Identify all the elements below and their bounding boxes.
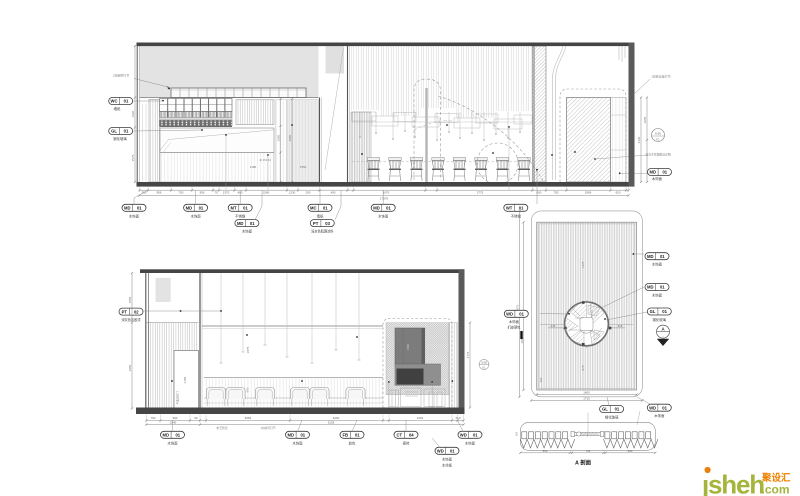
svg-text:1400: 1400 [583, 391, 590, 395]
svg-text:1999: 1999 [585, 191, 592, 195]
svg-text:GL: GL [602, 407, 608, 412]
svg-text:不锈钢: 不锈钢 [511, 213, 522, 218]
svg-text:WD: WD [437, 449, 444, 454]
svg-text:MD: MD [650, 170, 657, 175]
svg-text:木饰面: 木饰面 [129, 213, 140, 218]
svg-text:墙纸: 墙纸 [114, 106, 121, 111]
svg-text:PT: PT [313, 221, 319, 226]
svg-text:MC: MC [310, 206, 317, 211]
svg-text:850: 850 [628, 449, 633, 453]
svg-text:2950: 2950 [277, 134, 281, 141]
svg-text:01: 01 [386, 206, 391, 211]
svg-text:850: 850 [543, 449, 548, 453]
svg-text:不锈钢: 不锈钢 [235, 213, 246, 218]
svg-text:墙纸: 墙纸 [317, 213, 324, 218]
svg-text:MD: MD [288, 433, 295, 438]
svg-text:750: 750 [554, 191, 559, 195]
svg-text:400: 400 [331, 191, 336, 195]
svg-text:MD: MD [237, 221, 244, 226]
svg-text:01: 01 [250, 221, 255, 226]
svg-text:MD: MD [647, 285, 654, 290]
svg-text:WD: WD [649, 405, 656, 410]
svg-text:1550: 1550 [300, 165, 307, 169]
svg-text:01: 01 [355, 433, 360, 438]
svg-text:1670: 1670 [383, 191, 390, 195]
svg-text:01: 01 [124, 129, 129, 134]
svg-text:01: 01 [300, 433, 305, 438]
svg-text:2950: 2950 [128, 364, 132, 371]
svg-text:300: 300 [539, 377, 543, 382]
svg-text:6.92: 6.92 [655, 132, 661, 136]
svg-text:木饰面: 木饰面 [652, 293, 663, 298]
svg-text:木饰面: 木饰面 [242, 229, 253, 234]
svg-text:01: 01 [243, 206, 248, 211]
svg-text:01: 01 [137, 206, 142, 211]
svg-text:90: 90 [194, 416, 198, 420]
svg-text:1920: 1920 [131, 110, 135, 117]
svg-text:瓷砖: 瓷砖 [403, 440, 410, 445]
svg-text:744: 744 [586, 449, 591, 453]
svg-text:ȷsheh: ȷsheh [701, 470, 764, 496]
svg-text:956: 956 [200, 191, 205, 195]
svg-text:MD: MD [647, 254, 654, 259]
svg-text:01: 01 [660, 254, 665, 259]
svg-text:600: 600 [537, 191, 542, 195]
svg-text:01: 01 [519, 312, 524, 317]
svg-text:布艺软包: 布艺软包 [216, 426, 227, 430]
svg-text:MD: MD [186, 206, 193, 211]
svg-text:WD: WD [460, 433, 467, 438]
svg-text:WD: WD [506, 312, 513, 317]
svg-text:150: 150 [515, 431, 519, 436]
svg-text:700: 700 [179, 191, 184, 195]
svg-text:MD: MD [373, 206, 380, 211]
svg-text:软包: 软包 [349, 440, 356, 445]
svg-text:01: 01 [323, 206, 328, 211]
svg-text:2330: 2330 [637, 136, 641, 143]
svg-text:钢化玻璃: 钢化玻璃 [113, 136, 127, 141]
svg-text:J向椅背打节: J向椅背打节 [260, 426, 276, 430]
svg-text:GL: GL [111, 129, 117, 134]
svg-text:1376: 1376 [581, 261, 585, 268]
svg-text:木饰面: 木饰面 [652, 262, 663, 267]
svg-text:01: 01 [662, 405, 667, 410]
svg-text:6284: 6284 [245, 416, 252, 420]
svg-text:02: 02 [134, 309, 139, 314]
svg-text:MT: MT [230, 206, 236, 211]
svg-text:.com: .com [762, 483, 790, 496]
svg-text:1710: 1710 [583, 396, 590, 400]
svg-text:2950: 2950 [288, 134, 292, 141]
svg-text:木饰面: 木饰面 [509, 319, 520, 324]
svg-text:1575: 1575 [131, 154, 135, 161]
svg-text:PT: PT [122, 309, 128, 314]
svg-text:03: 03 [325, 221, 330, 226]
svg-text:GL: GL [650, 309, 656, 314]
svg-text:FB: FB [343, 433, 349, 438]
svg-text:4200: 4200 [333, 416, 340, 420]
svg-text:1500: 1500 [406, 344, 410, 350]
svg-text:J向蜂窝板打节: J向蜂窝板打节 [651, 74, 671, 79]
svg-text:425: 425 [618, 324, 623, 328]
svg-text:平面进线门: 平面进线门 [176, 391, 180, 404]
svg-text:木丝板: 木丝板 [442, 462, 453, 467]
svg-text:40 450 40: 40 450 40 [259, 158, 271, 162]
svg-text:F.L: F.L [656, 138, 660, 142]
svg-text:01: 01 [662, 309, 667, 314]
svg-text:876: 876 [581, 365, 585, 370]
svg-text:610: 610 [616, 191, 621, 195]
svg-text:木饰面: 木饰面 [442, 456, 453, 461]
svg-text:01: 01 [199, 206, 204, 211]
svg-text:A 剖面: A 剖面 [575, 459, 592, 467]
svg-text:木饰面: 木饰面 [167, 440, 178, 445]
svg-text:1050: 1050 [643, 116, 647, 123]
svg-text:1050: 1050 [128, 296, 132, 303]
svg-text:70: 70 [214, 191, 218, 195]
svg-text:-: - [662, 334, 663, 338]
svg-text:2775: 2775 [477, 191, 484, 195]
svg-text:2776: 2776 [466, 351, 470, 358]
svg-text:木饰面: 木饰面 [465, 440, 476, 445]
svg-text:1875: 1875 [246, 346, 250, 353]
svg-text:墙身木饰面做法详图: 墙身木饰面做法详图 [645, 153, 670, 157]
svg-text:01: 01 [450, 449, 455, 454]
svg-text:扪皮硬包: 扪皮硬包 [508, 324, 522, 329]
svg-text:深灰色乳胶漆: 深灰色乳胶漆 [121, 317, 141, 322]
svg-text:01: 01 [615, 407, 620, 412]
svg-text:木饰面: 木饰面 [652, 176, 663, 181]
svg-text:17076: 17076 [380, 197, 389, 201]
svg-text:深灰色肌理涂料: 深灰色肌理涂料 [311, 229, 334, 234]
svg-text:1180: 1180 [250, 165, 257, 169]
svg-text:钢化玻璃: 钢化玻璃 [653, 317, 667, 322]
svg-text:2100: 2100 [183, 376, 187, 383]
svg-text:J向橱柜打节: J向橱柜打节 [113, 73, 130, 78]
svg-text:425: 425 [551, 324, 556, 328]
svg-text:610: 610 [456, 416, 461, 420]
svg-text:200: 200 [306, 191, 311, 195]
svg-text:木饰面: 木饰面 [191, 213, 202, 218]
svg-text:MD: MD [163, 433, 170, 438]
svg-text:CT: CT [397, 433, 403, 438]
svg-text:01: 01 [519, 206, 524, 211]
svg-text:木饰面: 木饰面 [378, 213, 389, 218]
svg-text:木饰面: 木饰面 [654, 413, 665, 418]
svg-text:WC: WC [111, 99, 118, 104]
svg-text:2104: 2104 [417, 416, 424, 420]
svg-text:9128: 9128 [328, 420, 335, 424]
svg-text:956: 956 [157, 191, 162, 195]
svg-text:MD: MD [124, 206, 131, 211]
svg-text:600: 600 [246, 387, 250, 392]
svg-text:WT: WT [506, 206, 513, 211]
svg-text:1230: 1230 [289, 191, 296, 195]
svg-text:790: 790 [151, 416, 156, 420]
svg-text:01: 01 [473, 433, 478, 438]
svg-text:1590: 1590 [263, 191, 270, 195]
svg-text:01: 01 [662, 170, 667, 175]
svg-text:01: 01 [124, 99, 129, 104]
svg-text:木饰面: 木饰面 [292, 440, 303, 445]
svg-text:01: 01 [175, 433, 180, 438]
svg-text:900: 900 [173, 416, 178, 420]
svg-text:04: 04 [409, 433, 414, 438]
svg-text:01: 01 [660, 285, 665, 290]
svg-text:钢化玻璃: 钢化玻璃 [605, 415, 619, 420]
svg-text:1370: 1370 [223, 191, 230, 195]
svg-text:1940: 1940 [170, 420, 177, 424]
svg-text:5.08: 5.08 [481, 360, 487, 364]
